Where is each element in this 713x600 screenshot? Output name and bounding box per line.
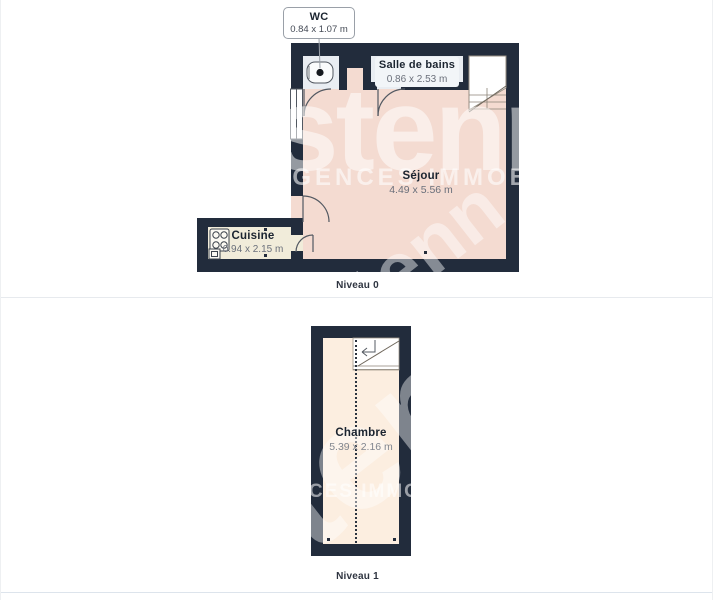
dimension-marker [327, 538, 330, 541]
floorplan-page: stenn AGENCES IMMOBILIÈRE stenn WC 0.84 … [0, 0, 713, 600]
wall-kitchen-top [197, 218, 291, 227]
wall-right [506, 43, 519, 272]
cuisine-name: Cuisine [207, 229, 299, 243]
wc-name: WC [288, 11, 350, 23]
sejour-label: Séjour 4.49 x 5.56 m [331, 169, 511, 198]
wc-floor [303, 56, 339, 89]
wall-notch [347, 43, 363, 68]
wc-callout: WC 0.84 x 1.07 m [283, 7, 355, 39]
chambre-dims: 5.39 x 2.16 m [311, 441, 411, 454]
level-0-caption: Niveau 0 [1, 280, 713, 291]
salle-de-bains-dims: 0.86 x 2.53 m [367, 74, 467, 87]
sejour-name: Séjour [331, 169, 511, 183]
wall-top [291, 43, 519, 56]
salle-de-bains-label: Salle de bains 0.86 x 2.53 m [367, 59, 467, 86]
window-icon [291, 89, 303, 139]
wc-dims: 0.84 x 1.07 m [288, 24, 350, 35]
dimension-marker [393, 538, 396, 541]
chambre-label: Chambre 5.39 x 2.16 m [311, 426, 411, 455]
wall-bottom [311, 544, 411, 556]
wall-left-upper [291, 43, 303, 89]
sejour-dims: 4.49 x 5.56 m [331, 184, 511, 197]
cuisine-label: Cuisine 0.94 x 2.15 m [207, 229, 299, 257]
wall-bottom [197, 259, 519, 272]
level-0-plan: stenn AGENCES IMMOBILIÈRE stenn WC 0.84 … [1, 0, 713, 297]
cuisine-dims: 0.94 x 2.15 m [207, 244, 299, 257]
wall-left-mid [291, 139, 303, 196]
bottom-divider [1, 592, 713, 593]
wall-wc-right [339, 43, 347, 90]
chambre-name: Chambre [311, 426, 411, 440]
entry-doorway-floor [291, 196, 303, 218]
level-1-caption: Niveau 1 [1, 571, 713, 582]
level-1-plan: stenn AGENCES IMMOBILIÈRE Chambre 5.39 x… [1, 297, 713, 600]
salle-de-bains-name: Salle de bains [367, 59, 467, 73]
wall-top [311, 326, 411, 338]
dimension-marker [424, 251, 427, 254]
